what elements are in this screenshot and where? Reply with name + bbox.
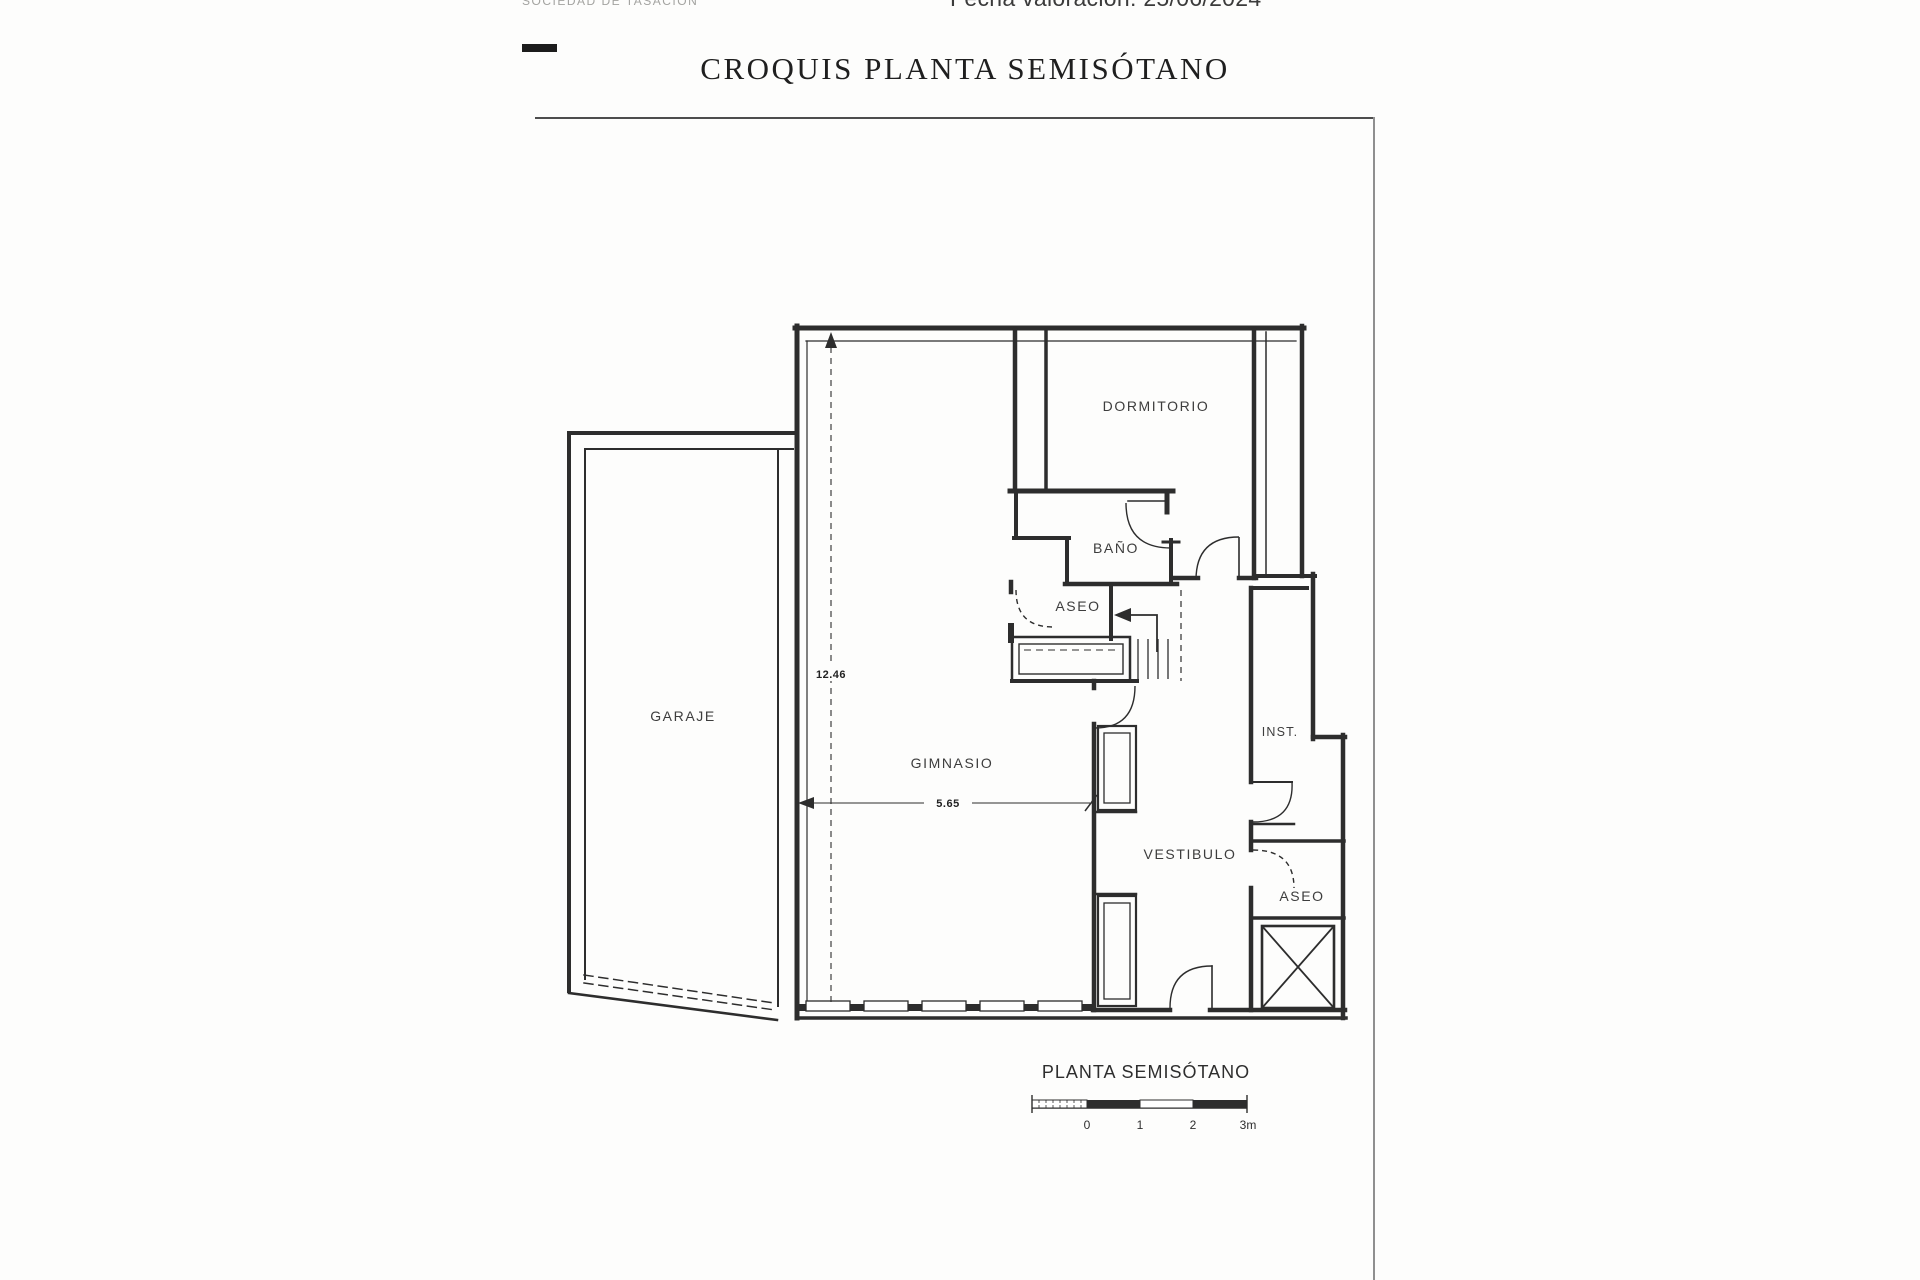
- plan-caption: PLANTA SEMISÓTANO: [1042, 1061, 1250, 1082]
- dimension-horizontal-label: 5.65: [936, 798, 959, 810]
- dimension-vertical-label: 12.46: [816, 669, 846, 681]
- garage-walls: [569, 433, 795, 1020]
- vertical-dimension: 12.46: [812, 332, 850, 1003]
- interior-walls: [1010, 330, 1344, 1010]
- scanned-document-page: SOCIEDAD DE TASACIÓN Fecha valoración: 2…: [0, 0, 1920, 1280]
- aseo-door-arc: [1016, 590, 1053, 627]
- bottom-walls: [1093, 966, 1345, 1010]
- room-label-aseo: ASEO: [1055, 598, 1100, 614]
- scale-tick-2: 2: [1190, 1118, 1197, 1132]
- room-label-bano: BAÑO: [1093, 540, 1139, 556]
- room-label-inst: INST.: [1262, 725, 1299, 739]
- right-aseo-door-arc: [1253, 850, 1294, 888]
- stair-direction-line: [1130, 615, 1157, 652]
- room-label-garaje: GARAJE: [650, 708, 716, 724]
- landing-door-arc: [1196, 537, 1239, 580]
- scale-tick-3m: 3m: [1240, 1118, 1257, 1132]
- inst-door-arc: [1253, 782, 1292, 822]
- horizontal-dimension: 5.65: [798, 793, 1097, 811]
- room-label-dormitorio: DORMITORIO: [1103, 398, 1210, 414]
- room-label-gimnasio: GIMNASIO: [911, 755, 994, 771]
- vestibule-closets: [1098, 726, 1136, 1006]
- floor-plan-drawing: 12.46 5.65 GARAJE GIMNASIO DORMITORIO BA…: [0, 0, 1920, 1280]
- stair-direction-arrowhead: [1114, 608, 1131, 622]
- elevator-shaft-box: [1262, 926, 1334, 1008]
- building-outer-walls: [795, 326, 1346, 1018]
- scale-tick-1: 1: [1137, 1118, 1144, 1132]
- room-label-vestibulo: VESTIBULO: [1144, 846, 1237, 862]
- basement-window-band: [797, 1001, 1093, 1011]
- scale-bar: 0 1 2 3m: [1032, 1095, 1256, 1132]
- room-label-aseo2: ASEO: [1279, 888, 1324, 904]
- gym-vestibule-door-arc: [1095, 686, 1135, 728]
- scale-tick-0: 0: [1084, 1118, 1091, 1132]
